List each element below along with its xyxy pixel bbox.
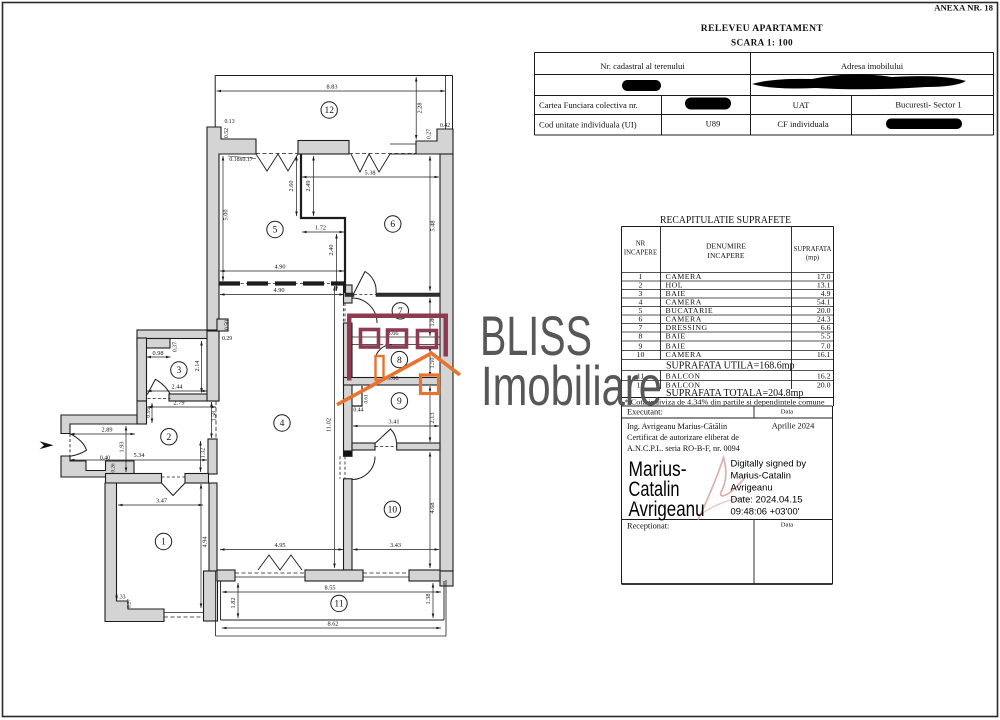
svg-text:ANEXA NR. 18: ANEXA NR. 18: [934, 3, 993, 13]
svg-text:Date: 2024.04.15: Date: 2024.04.15: [731, 494, 803, 505]
svg-text:NR: NR: [636, 241, 646, 248]
svg-text:4.90: 4.90: [273, 287, 284, 294]
svg-text:2.13: 2.13: [429, 412, 436, 423]
svg-text:Nr. cadastral al terenului: Nr. cadastral al terenului: [600, 61, 685, 71]
svg-text:0.13: 0.13: [225, 119, 235, 125]
svg-text:4.90: 4.90: [274, 264, 285, 271]
svg-text:9: 9: [397, 397, 402, 407]
svg-text:A.N.C.P.L. seria RO-B-F, nr. 0: A.N.C.P.L. seria RO-B-F, nr. 0094: [627, 444, 740, 453]
svg-text:0.29: 0.29: [222, 336, 232, 342]
svg-text:1.93: 1.93: [119, 441, 126, 452]
svg-text:UAT: UAT: [793, 100, 810, 110]
svg-text:16.2: 16.2: [817, 372, 831, 381]
svg-text:2.14: 2.14: [194, 360, 201, 372]
svg-text:12: 12: [324, 106, 334, 116]
svg-text:2.49: 2.49: [305, 180, 312, 191]
svg-text:3.47: 3.47: [156, 498, 167, 505]
svg-text:RECAPITULATIE SUPRAFETE: RECAPITULATIE SUPRAFETE: [660, 215, 791, 226]
svg-text:Aprilie 2024: Aprilie 2024: [772, 422, 815, 431]
svg-text:INCAPERE: INCAPERE: [624, 250, 657, 257]
svg-text:8: 8: [639, 332, 643, 341]
svg-text:8.83: 8.83: [326, 84, 337, 91]
svg-text:0.27: 0.27: [127, 599, 133, 608]
svg-text:4.95: 4.95: [274, 542, 285, 549]
svg-text:Bucuresti- Sector 1: Bucuresti- Sector 1: [895, 100, 961, 110]
svg-text:2.28: 2.28: [417, 102, 424, 113]
svg-text:(mp): (mp): [806, 255, 819, 262]
svg-text:Certificat de autorizare elibe: Certificat de autorizare eliberat de: [627, 433, 739, 442]
svg-text:09:48:06 +03'00': 09:48:06 +03'00': [731, 506, 800, 517]
svg-text:8: 8: [397, 356, 402, 366]
svg-text:Avrigeanu: Avrigeanu: [731, 482, 773, 493]
svg-text:BALCON: BALCON: [666, 372, 701, 381]
svg-text:2.89: 2.89: [101, 427, 112, 434]
svg-text:0.26: 0.26: [111, 463, 117, 472]
svg-text:CF individuala: CF individuala: [777, 119, 829, 129]
svg-text:Marius-Catalin: Marius-Catalin: [731, 470, 791, 481]
svg-text:11.02: 11.02: [326, 418, 333, 432]
svg-text:2: 2: [167, 433, 172, 443]
svg-text:Imobiliare: Imobiliare: [481, 355, 662, 417]
svg-text:0.52: 0.52: [224, 128, 230, 138]
svg-text:3.43: 3.43: [390, 542, 401, 549]
svg-text:4.68: 4.68: [429, 502, 436, 513]
svg-text:Cartea Funciara colectiva nr.: Cartea Funciara colectiva nr.: [539, 100, 638, 110]
svg-text:DENUMIRE: DENUMIRE: [706, 242, 746, 251]
svg-text:3.41: 3.41: [388, 419, 399, 426]
svg-text:2.60: 2.60: [288, 180, 295, 191]
svg-text:0.50: 0.50: [225, 320, 231, 330]
svg-text:RELEVEU APARTAMENT: RELEVEU APARTAMENT: [701, 23, 824, 34]
svg-text:CAMERA: CAMERA: [666, 350, 702, 359]
svg-text:1.58: 1.58: [212, 411, 218, 421]
svg-text:4: 4: [280, 419, 285, 429]
svg-text:SCARA 1: 100: SCARA 1: 100: [731, 38, 793, 48]
svg-text:16.1: 16.1: [817, 350, 831, 359]
svg-text:0.40: 0.40: [100, 456, 110, 462]
svg-text:Adresa imobilului: Adresa imobilului: [841, 61, 904, 71]
svg-text:5.38: 5.38: [364, 170, 375, 177]
svg-text:2.79: 2.79: [173, 400, 184, 407]
svg-text:SUPRAFATA UTILA=168.6mp: SUPRAFATA UTILA=168.6mp: [666, 361, 795, 372]
svg-text:1.50: 1.50: [429, 357, 436, 368]
svg-text:0.42: 0.42: [440, 123, 450, 129]
svg-text:Data: Data: [781, 409, 794, 416]
svg-text:0.61: 0.61: [364, 394, 370, 403]
svg-text:0.44: 0.44: [353, 408, 363, 414]
svg-text:5.34: 5.34: [133, 452, 145, 459]
svg-text:1.72: 1.72: [315, 225, 326, 232]
svg-text:1.32: 1.32: [201, 448, 207, 458]
svg-text:0.37: 0.37: [173, 342, 179, 352]
svg-text:Digitally signed by: Digitally signed by: [731, 458, 807, 469]
svg-text:1: 1: [161, 538, 166, 548]
svg-text:1.82: 1.82: [230, 597, 237, 608]
svg-text:Receptionat:: Receptionat:: [627, 522, 669, 531]
svg-text:0.33: 0.33: [115, 595, 125, 601]
svg-text:Data: Data: [781, 522, 794, 529]
svg-text:5.00: 5.00: [223, 209, 230, 220]
svg-text:8.55: 8.55: [324, 585, 335, 592]
svg-text:2.40: 2.40: [328, 244, 335, 255]
svg-text:20.0: 20.0: [817, 381, 831, 390]
svg-text:5.5: 5.5: [821, 332, 831, 341]
svg-text:11: 11: [334, 600, 343, 610]
svg-text:U89: U89: [706, 119, 721, 129]
svg-text:6: 6: [390, 220, 395, 230]
svg-text:3: 3: [177, 366, 182, 376]
svg-text:Avrigeanu: Avrigeanu: [629, 498, 705, 521]
svg-text:8.62: 8.62: [327, 621, 338, 628]
svg-text:Ing. Avrigeanu Marius-Cătălin: Ing. Avrigeanu Marius-Cătălin: [627, 422, 727, 431]
svg-text:5: 5: [273, 226, 278, 236]
svg-text:Cod unitate individuala (UI): Cod unitate individuala (UI): [539, 120, 637, 130]
svg-text:BAIE: BAIE: [666, 332, 686, 341]
svg-text:1.38: 1.38: [425, 593, 432, 604]
svg-text:INCAPERE: INCAPERE: [707, 251, 744, 260]
svg-text:0.27: 0.27: [427, 129, 433, 139]
svg-text:10: 10: [388, 506, 398, 516]
svg-text:0.95: 0.95: [146, 407, 152, 417]
svg-text:5.48: 5.48: [430, 220, 437, 231]
svg-text:2.44: 2.44: [171, 384, 183, 391]
svg-text:0.98: 0.98: [152, 350, 163, 357]
svg-text:SUPRAFATA: SUPRAFATA: [794, 246, 832, 253]
svg-text:4.94: 4.94: [202, 536, 209, 548]
